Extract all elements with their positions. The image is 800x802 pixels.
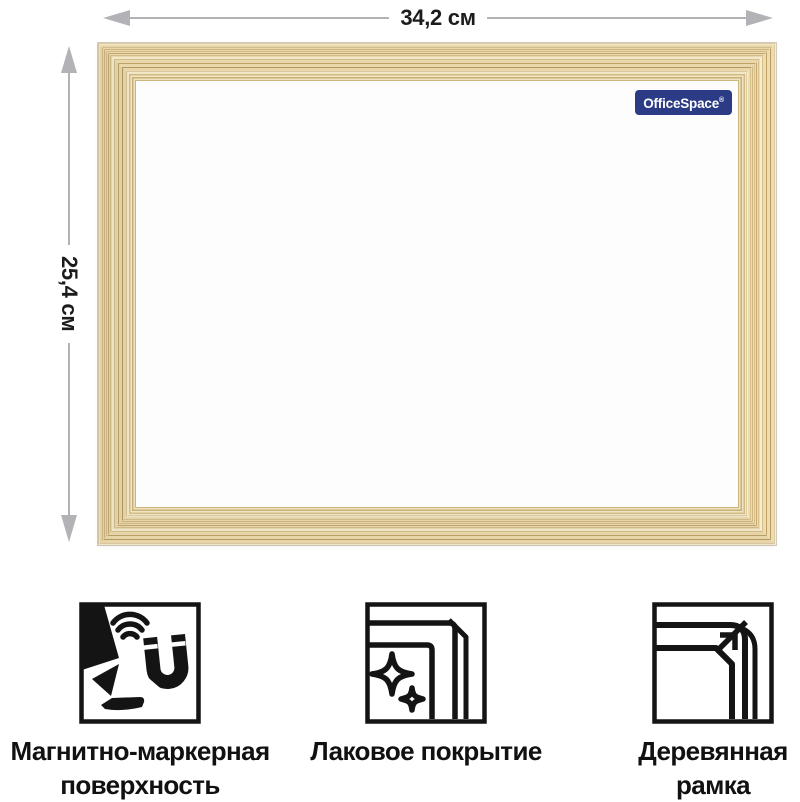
feature-wooden-frame: Деревянная рамка xyxy=(583,602,800,802)
wood-corner-icon xyxy=(652,602,774,724)
whiteboard: OfficeSpace® xyxy=(98,43,776,545)
feature-lacquer: Лаковое покрытие xyxy=(296,602,556,768)
arrowhead-up-icon xyxy=(61,46,77,73)
feature-label: Деревянная рамка xyxy=(583,734,800,802)
feature-label-line: поверхность xyxy=(10,768,270,802)
feature-label-line: Магнитно-маркерная xyxy=(10,734,270,768)
width-dimension: 34,2 см xyxy=(103,4,773,32)
height-dimension-label: 25,4 см xyxy=(56,256,82,331)
wood-frame-bottom xyxy=(98,515,776,545)
dimension-line xyxy=(130,17,389,19)
brand-name: OfficeSpace xyxy=(643,96,719,111)
feature-label: Магнитно-маркерная поверхность xyxy=(10,734,270,802)
product-image: { "dimensions": { "width": { "label": "3… xyxy=(0,0,800,800)
wood-frame-left xyxy=(98,43,128,545)
feature-label-line: Лаковое покрытие xyxy=(296,734,556,768)
feature-label-line: Деревянная xyxy=(583,734,800,768)
arrowhead-right-icon xyxy=(746,10,773,26)
board-surface: OfficeSpace® xyxy=(136,81,738,507)
feature-magnetic-marker: Магнитно-маркерная поверхность xyxy=(10,602,270,802)
dimension-line xyxy=(68,73,70,245)
width-dimension-label: 34,2 см xyxy=(400,5,475,31)
feature-label: Лаковое покрытие xyxy=(296,734,556,768)
sparkle-corner-icon xyxy=(365,602,487,724)
dimension-line xyxy=(487,17,746,19)
wood-frame-top xyxy=(98,43,776,73)
dimension-line xyxy=(68,343,70,515)
brand-registered-mark: ® xyxy=(719,97,724,104)
marker-magnet-icon xyxy=(79,602,201,724)
feature-label-line: рамка xyxy=(583,768,800,802)
wood-frame-right xyxy=(746,43,776,545)
brand-badge: OfficeSpace® xyxy=(635,90,732,115)
arrowhead-left-icon xyxy=(103,10,130,26)
height-dimension: 25,4 см xyxy=(55,46,83,542)
arrowhead-down-icon xyxy=(61,515,77,542)
